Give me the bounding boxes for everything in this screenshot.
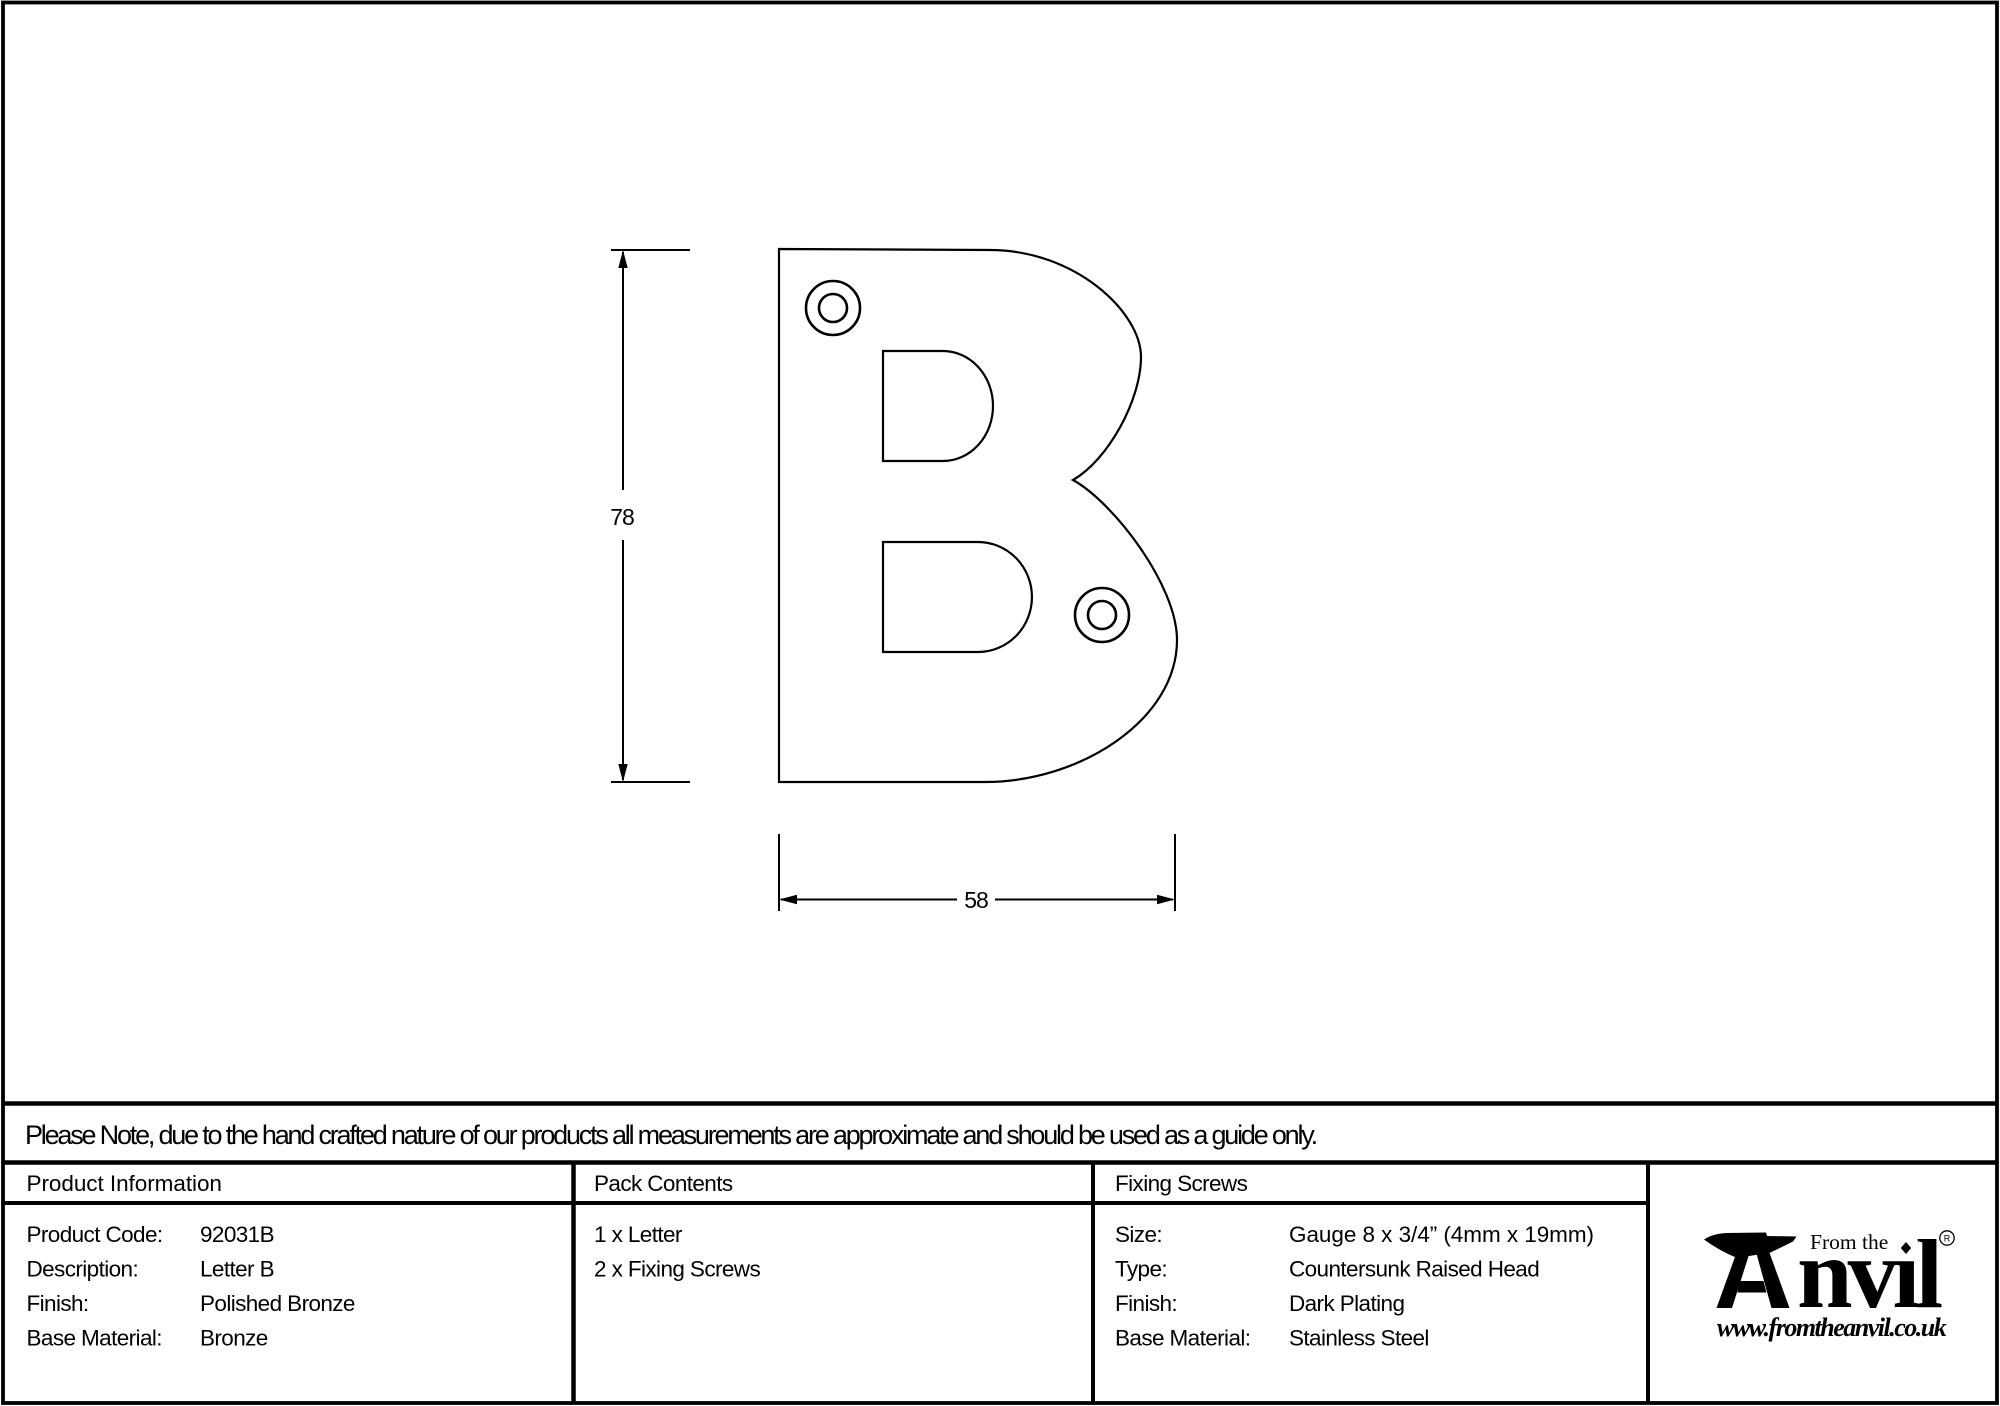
svg-text:Product Code:: Product Code: [27, 1222, 163, 1247]
svg-text:Fixing Screws: Fixing Screws [1115, 1171, 1248, 1196]
svg-text:58: 58 [964, 887, 988, 913]
svg-text:Gauge 8 x 3/4” (4mm x 19mm): Gauge 8 x 3/4” (4mm x 19mm) [1289, 1222, 1594, 1247]
svg-text:From the: From the [1810, 1230, 1888, 1254]
svg-text:Finish:: Finish: [27, 1291, 89, 1316]
svg-text:Base Material:: Base Material: [27, 1326, 162, 1351]
svg-text:Dark Plating: Dark Plating [1289, 1291, 1404, 1316]
svg-text:Polished Bronze: Polished Bronze [200, 1291, 355, 1316]
svg-text:Type:: Type: [1115, 1257, 1167, 1282]
svg-text:Countersunk Raised Head: Countersunk Raised Head [1289, 1257, 1539, 1282]
svg-text:Description:: Description: [27, 1257, 139, 1282]
svg-text:78: 78 [610, 504, 634, 530]
svg-text:Letter B: Letter B [200, 1257, 274, 1282]
svg-text:www.fromtheanvil.co.uk: www.fromtheanvil.co.uk [1717, 1313, 1947, 1342]
svg-text:Finish:: Finish: [1115, 1291, 1177, 1316]
svg-text:92031B: 92031B [200, 1222, 274, 1247]
svg-text:Product Information: Product Information [27, 1171, 222, 1196]
svg-text:Stainless Steel: Stainless Steel [1289, 1326, 1429, 1351]
svg-text:Bronze: Bronze [200, 1326, 268, 1351]
svg-text:1 x Letter: 1 x Letter [594, 1222, 683, 1247]
svg-text:Size:: Size: [1115, 1222, 1162, 1247]
svg-text:Base Material:: Base Material: [1115, 1326, 1250, 1351]
svg-text:R: R [1944, 1234, 1951, 1244]
svg-text:Please Note, due to the hand c: Please Note, due to the hand crafted nat… [25, 1120, 1317, 1150]
svg-text:Pack Contents: Pack Contents [594, 1171, 733, 1196]
svg-text:2 x Fixing Screws: 2 x Fixing Screws [594, 1257, 760, 1282]
